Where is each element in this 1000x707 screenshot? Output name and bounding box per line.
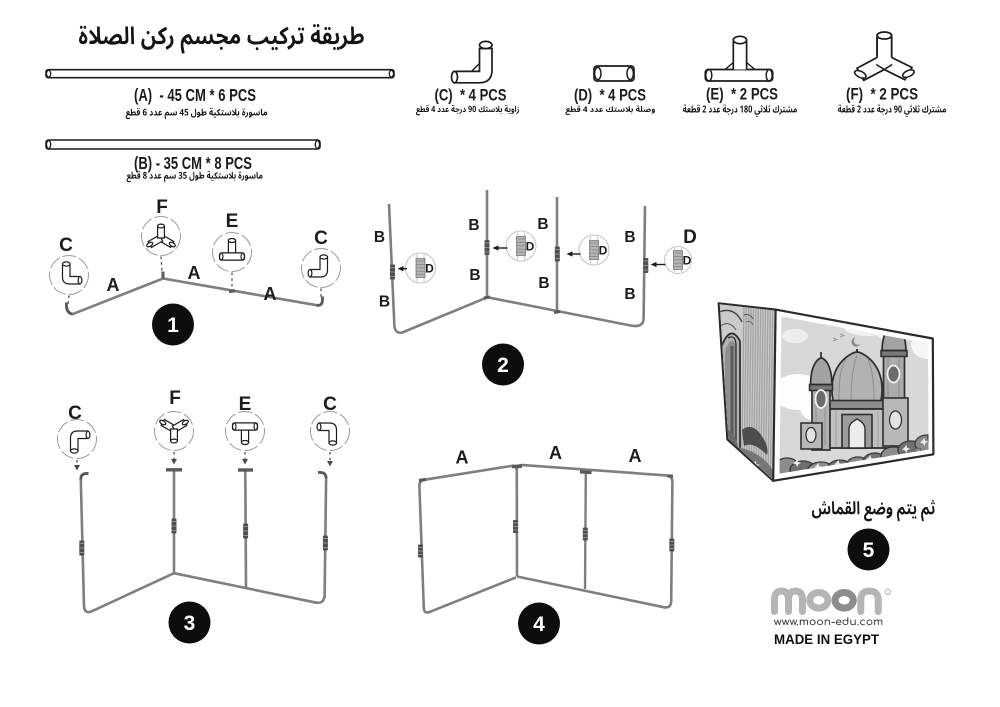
svg-text:C: C: [59, 235, 73, 256]
svg-text:F: F: [156, 197, 168, 218]
svg-text:E: E: [226, 211, 239, 232]
svg-text:(A) - 45 CM * 6 PCS: (A) - 45 CM * 6 PCS: [134, 85, 256, 105]
svg-text:E: E: [239, 394, 252, 415]
svg-text:A: A: [264, 284, 277, 304]
svg-text:A: A: [629, 446, 642, 466]
svg-text:D: D: [599, 244, 608, 258]
svg-text:(D) * 4 PCS: (D) * 4 PCS: [574, 87, 646, 105]
svg-text:D: D: [683, 254, 692, 268]
svg-text:4: 4: [533, 613, 545, 636]
svg-text:D: D: [425, 262, 434, 276]
svg-text:D: D: [683, 227, 697, 248]
svg-text:C: C: [314, 228, 328, 249]
svg-text:A: A: [456, 448, 469, 468]
svg-text:A: A: [549, 443, 562, 463]
svg-text:B: B: [469, 267, 480, 284]
svg-text:B: B: [374, 229, 385, 246]
svg-text:MADE IN EGYPT: MADE IN EGYPT: [774, 632, 880, 647]
svg-text:(C) * 4 PCS: (C) * 4 PCS: [435, 87, 507, 105]
svg-text:B: B: [624, 229, 635, 246]
svg-text:2: 2: [497, 354, 509, 377]
svg-text:B: B: [379, 294, 390, 311]
svg-text:(E) * 2 PCS: (E) * 2 PCS: [706, 86, 778, 104]
svg-text:B: B: [624, 286, 635, 303]
svg-text:(F) * 2 PCS: (F) * 2 PCS: [846, 86, 918, 104]
svg-text:C: C: [323, 394, 337, 415]
svg-text:A: A: [107, 275, 120, 295]
svg-text:B: B: [537, 216, 548, 233]
svg-text:D: D: [526, 240, 535, 254]
svg-text:C: C: [68, 403, 82, 424]
svg-text:B: B: [468, 217, 479, 234]
svg-text:B: B: [538, 275, 549, 292]
svg-text:A: A: [188, 263, 201, 283]
svg-text:3: 3: [184, 612, 196, 635]
svg-text:F: F: [169, 388, 181, 409]
svg-text:5: 5: [863, 539, 875, 562]
svg-text:(B) - 35 CM * 8 PCS: (B) - 35 CM * 8 PCS: [134, 153, 252, 173]
svg-text:1: 1: [167, 314, 179, 337]
